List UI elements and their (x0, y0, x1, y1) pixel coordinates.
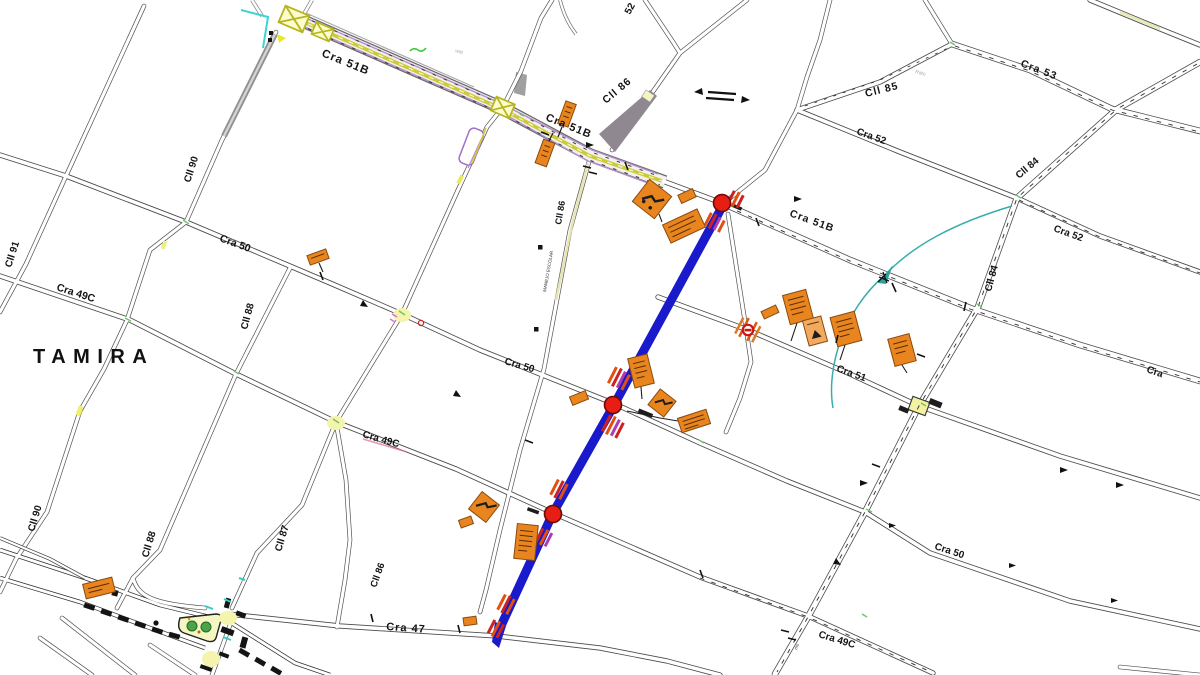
svg-text:TAMIRA: TAMIRA (33, 346, 154, 368)
